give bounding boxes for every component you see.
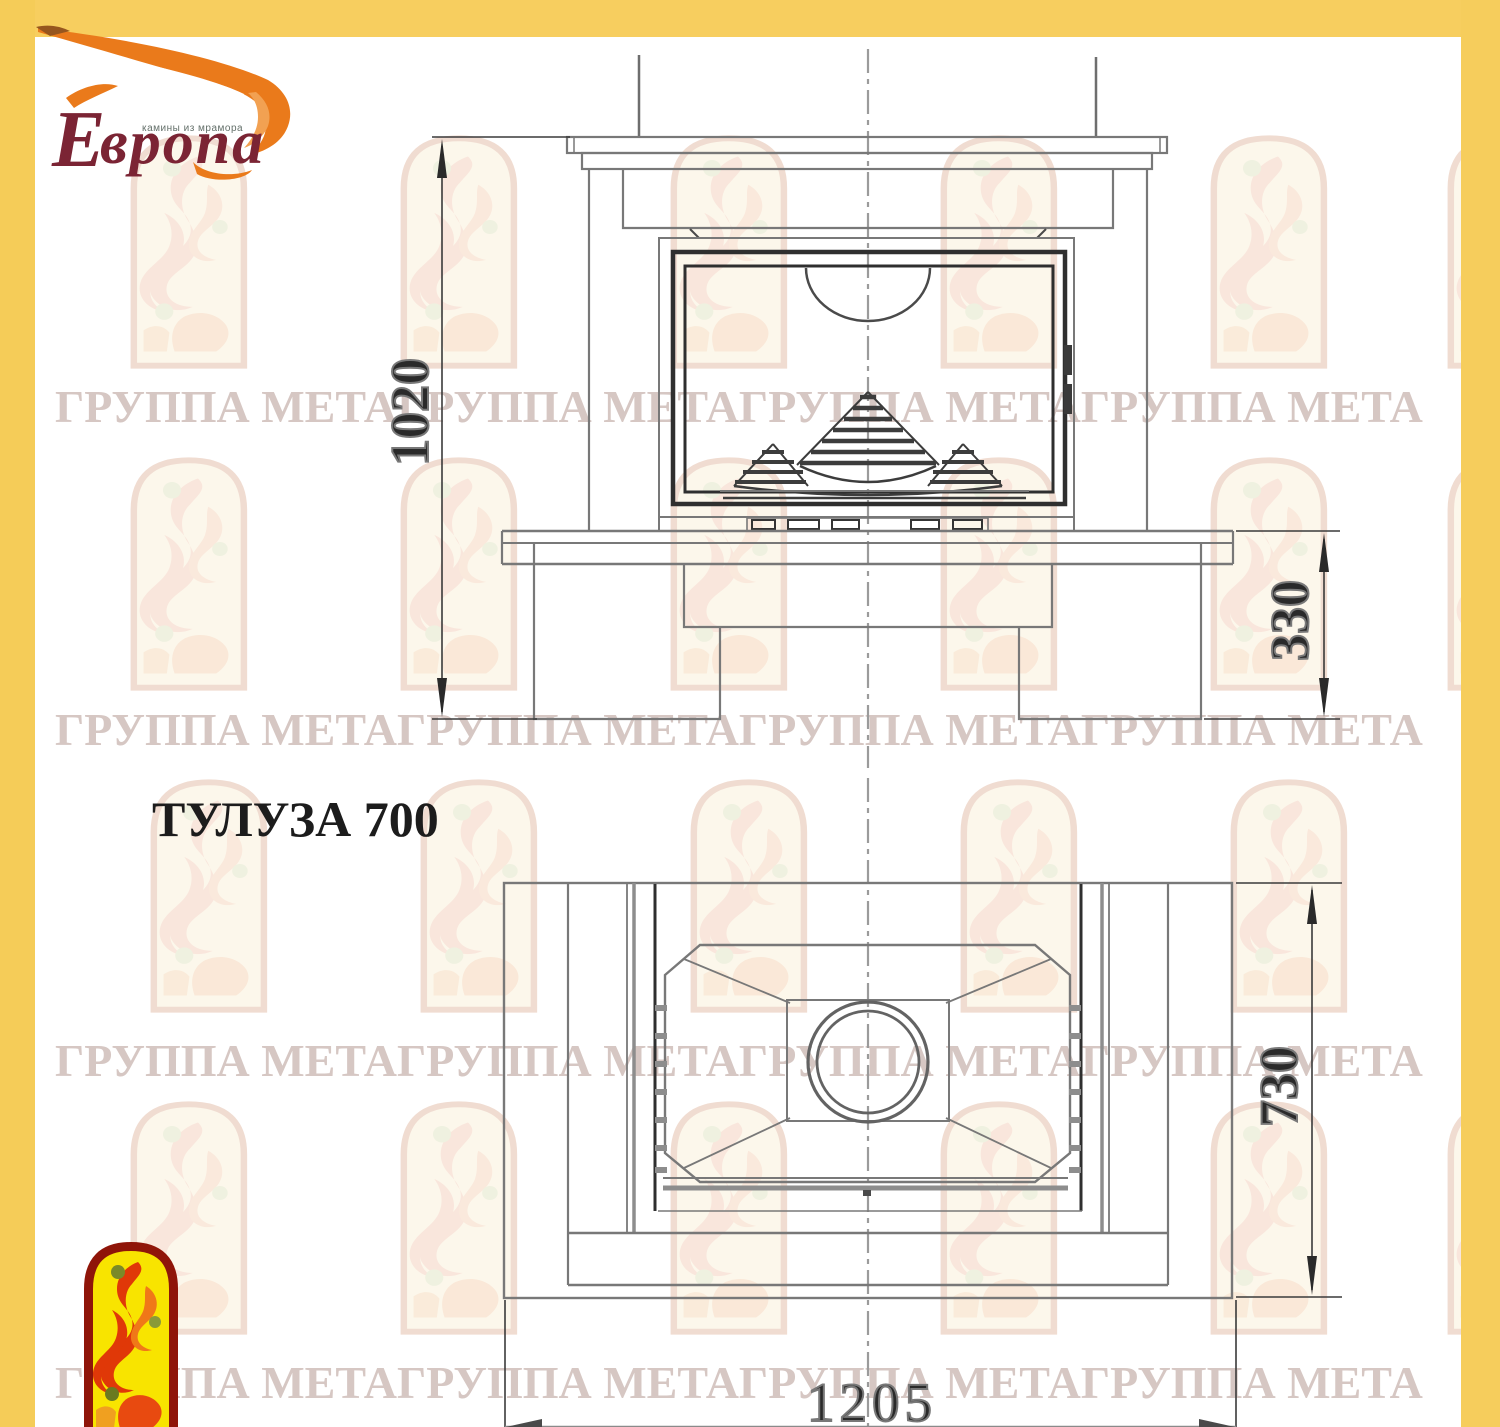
svg-text:330: 330: [1260, 580, 1320, 661]
svg-text:ГРУППА МЕТАГРУППА МЕТАГРУППА М: ГРУППА МЕТАГРУППА МЕТАГРУППА МЕТАГРУППА …: [55, 381, 1423, 432]
svg-text:ГРУППА МЕТАГРУППА МЕТАГРУППА М: ГРУППА МЕТАГРУППА МЕТАГРУППА МЕТАГРУППА …: [55, 1357, 1423, 1408]
svg-text:вропа: вропа: [100, 109, 265, 177]
svg-text:ТУЛУЗА 700: ТУЛУЗА 700: [152, 791, 439, 847]
svg-text:ГРУППА МЕТАГРУППА МЕТАГРУППА М: ГРУППА МЕТАГРУППА МЕТАГРУППА МЕТАГРУППА …: [55, 704, 1423, 755]
svg-text:1020: 1020: [380, 358, 440, 466]
svg-text:Е: Е: [51, 96, 105, 184]
svg-text:1205: 1205: [807, 1372, 937, 1427]
svg-text:ГРУППА МЕТАГРУППА МЕТАГРУППА М: ГРУППА МЕТАГРУППА МЕТАГРУППА МЕТАГРУППА …: [55, 1035, 1423, 1086]
svg-text:730: 730: [1249, 1046, 1309, 1127]
